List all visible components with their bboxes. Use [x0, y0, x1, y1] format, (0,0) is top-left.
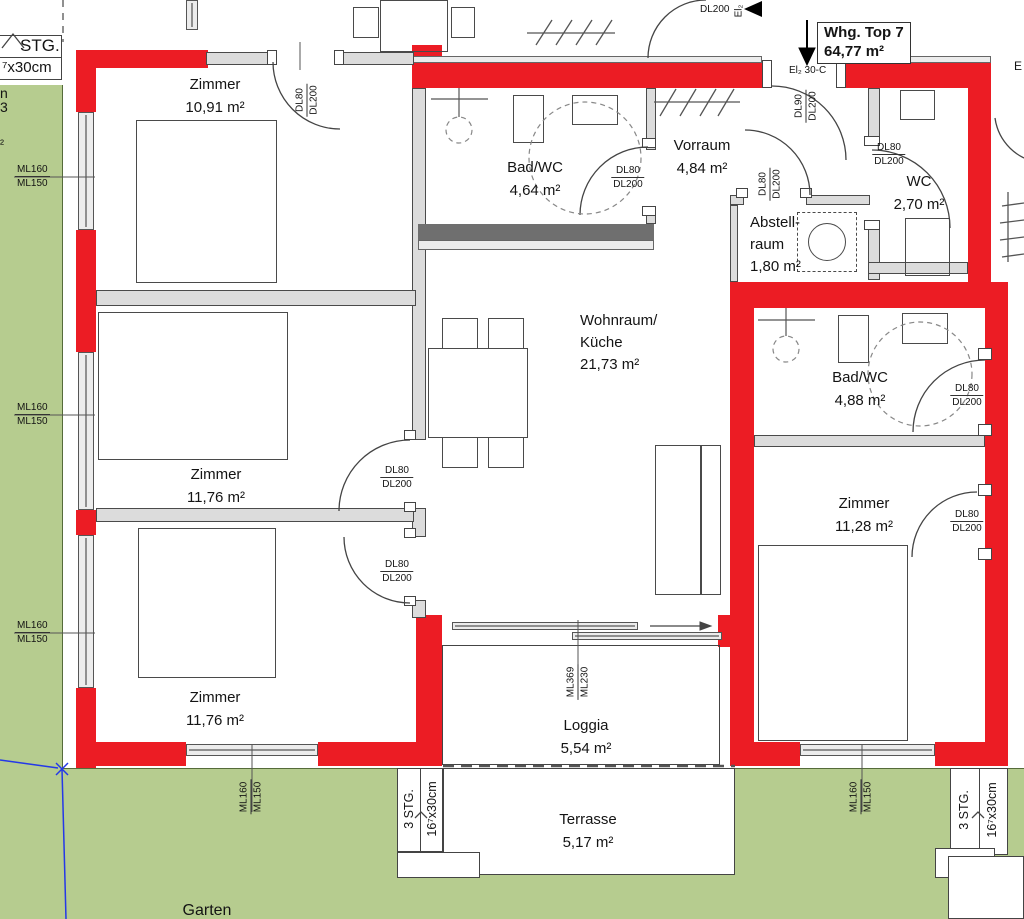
door-post	[736, 188, 748, 198]
room-label-wc: WC 2,70 m²	[894, 170, 945, 217]
room-name: Zimmer	[190, 689, 241, 706]
wall-segment	[844, 62, 970, 88]
chair	[488, 318, 524, 348]
interior-wall	[806, 195, 870, 205]
window	[186, 744, 318, 756]
room-label-zimmer-right: Zimmer 11,28 m²	[835, 492, 893, 539]
door-size-label: DL80 DL200	[294, 83, 321, 116]
room-area: 1,80 m²	[750, 258, 801, 275]
garden-left-strip	[0, 85, 63, 919]
room-name: Wohnraum/	[580, 312, 657, 329]
unit-title: Whg. Top 7	[824, 24, 904, 41]
sideboard-line	[700, 445, 702, 595]
window-width: ML160	[15, 163, 50, 177]
door-height: DL200	[611, 178, 644, 191]
loggia-slider-left	[452, 622, 638, 630]
chair	[488, 438, 524, 468]
chair-outside	[353, 7, 379, 38]
door-height: DL200	[380, 478, 413, 491]
room-label-vorraum: Vorraum 4,84 m²	[674, 134, 731, 181]
door-size-label: DL80 DL200	[380, 558, 413, 585]
wall-segment	[76, 230, 96, 352]
garden-label: Garten	[183, 899, 232, 919]
room-label-terrasse: Terrasse 5,17 m²	[559, 808, 617, 855]
door-post	[404, 596, 416, 606]
door-width: DL80	[950, 382, 983, 396]
window	[800, 744, 935, 756]
stair-size-partial: ⁷x30cm	[2, 59, 52, 77]
window-width: ML160	[15, 401, 50, 415]
window	[78, 352, 94, 510]
window	[78, 535, 94, 688]
room-area: 10,91 m²	[185, 99, 244, 116]
chair-outside	[451, 7, 475, 38]
door-width: DL80	[611, 164, 644, 178]
corridor-arrow-icon	[744, 1, 762, 17]
shower	[838, 315, 869, 363]
interior-wall	[730, 205, 738, 282]
door-height: DL200	[950, 522, 983, 535]
wall-segment	[730, 282, 1008, 308]
window-size-label: ML160 ML150	[238, 780, 265, 815]
kitchen-counter	[418, 224, 654, 240]
room-label-zimmer-mid-left: Zimmer 11,76 m²	[187, 463, 245, 510]
door-post	[836, 60, 846, 88]
steps-left-lower	[397, 852, 480, 878]
door-width: DL80	[950, 508, 983, 522]
room-name: Terrasse	[559, 811, 617, 828]
unit-title-box: Whg. Top 7 64,77 m²	[817, 22, 911, 64]
window-size-label: ML160 ML150	[848, 780, 875, 815]
room-name: Zimmer	[839, 495, 890, 512]
window-width: ML160	[848, 780, 862, 815]
room-name: Zimmer	[191, 466, 242, 483]
wall-segment	[416, 615, 442, 766]
door-width: DL80	[757, 167, 771, 200]
room-area: 11,28 m²	[835, 518, 893, 535]
sideboard	[655, 445, 721, 595]
bed	[98, 312, 288, 460]
door-size-label: DL80 DL200	[757, 167, 784, 200]
room-name: WC	[906, 173, 931, 190]
door-post	[267, 50, 277, 65]
window-height: ML150	[862, 780, 875, 815]
washing-machine-drum	[808, 223, 846, 261]
door-width: DL80	[380, 558, 413, 572]
door-size-label: DL80 DL200	[950, 508, 983, 535]
door-size-label: DL80 DL200	[872, 141, 905, 168]
door-post	[978, 424, 992, 436]
chair	[442, 438, 478, 468]
bed	[758, 545, 908, 741]
door-post	[642, 206, 656, 216]
room-area: 5,54 m²	[561, 740, 612, 757]
interior-wall	[338, 52, 414, 65]
room-label-zimmer-top-left: Zimmer 10,91 m²	[185, 73, 244, 120]
room-name: Vorraum	[674, 137, 731, 154]
door-height: DL200	[950, 396, 983, 409]
door-post	[642, 138, 656, 148]
wall-segment	[76, 742, 186, 766]
interior-wall	[96, 508, 414, 522]
door-post	[978, 484, 992, 496]
unit-area: 64,77 m²	[824, 43, 884, 60]
steps-right-divider	[979, 768, 980, 855]
door-width: DL80	[872, 141, 905, 155]
window	[186, 0, 198, 30]
shower	[513, 95, 544, 143]
door-height: DL200	[308, 83, 321, 116]
window-size-label: ML160 ML150	[15, 401, 50, 428]
table-outside	[380, 0, 448, 52]
door-size-label: DL80 DL200	[380, 464, 413, 491]
door-post	[864, 220, 880, 230]
floor-plan: STG. ⁷x30cm	[0, 0, 1024, 919]
door-height: DL200	[380, 572, 413, 585]
room-name: Bad/WC	[832, 369, 888, 386]
wall-segment	[754, 742, 800, 766]
bed	[138, 528, 276, 678]
wall-segment	[968, 62, 991, 308]
interior-wall	[412, 88, 426, 440]
window-width: ML160	[238, 780, 252, 815]
room-name: Bad/WC	[507, 159, 563, 176]
window-height: ML150	[15, 415, 50, 428]
room-name: Küche	[580, 334, 623, 351]
door-height: DL200	[771, 167, 784, 200]
edge-text-fragment: ²	[0, 138, 4, 150]
room-label-bad-wc-right: Bad/WC 4,88 m²	[832, 366, 888, 413]
door-post	[978, 548, 992, 560]
door-post	[404, 528, 416, 538]
stairs-count-label: 3 STG.	[957, 790, 971, 830]
window-height: ML150	[15, 633, 50, 646]
interior-wall	[96, 290, 416, 306]
room-name: raum	[750, 236, 784, 253]
door-post	[762, 60, 772, 88]
entrance-door-code: El₂ 30-C	[789, 64, 826, 77]
room-area: 4,88 m²	[835, 392, 886, 409]
window	[78, 112, 94, 230]
chair	[442, 318, 478, 348]
stairs-count-label: 3 STG.	[402, 789, 416, 829]
door-post	[334, 50, 344, 65]
room-area: 5,17 m²	[563, 834, 614, 851]
door-height: DL200	[807, 89, 820, 122]
room-area: 11,76 m²	[187, 489, 245, 506]
door-size-label: DL80 DL200	[950, 382, 983, 409]
wall-segment	[76, 510, 96, 535]
door-width: DL90	[793, 89, 807, 122]
stair-label-partial: STG.	[20, 37, 60, 56]
steps-left-divider	[420, 768, 421, 852]
loggia-door-size-label: ML369 ML230	[565, 665, 592, 700]
edge-text-fragment: 3	[0, 100, 8, 114]
stairs-size-label: 16⁷x30cm	[985, 782, 999, 837]
corridor-el-label: El₂	[733, 5, 746, 18]
kitchen-counter-edge	[418, 240, 654, 250]
door-post	[800, 188, 812, 198]
stairs-size-label: 16⁷x30cm	[425, 781, 439, 836]
door-width: DL80	[380, 464, 413, 478]
room-name: Zimmer	[190, 76, 241, 93]
washer	[902, 313, 948, 344]
room-area: 2,70 m²	[894, 196, 945, 213]
interior-wall	[206, 52, 273, 65]
window-height: ML230	[579, 665, 592, 700]
room-label-zimmer-bottom-left: Zimmer 11,76 m²	[186, 686, 244, 733]
dining-table	[428, 348, 528, 438]
interior-wall	[754, 435, 985, 447]
room-area: 4,64 m²	[510, 182, 561, 199]
window-width: ML369	[565, 665, 579, 700]
bed	[136, 120, 277, 283]
room-label-wohnraum: Wohnraum/ Küche 21,73 m²	[580, 310, 657, 375]
door-post	[404, 502, 416, 512]
wc-sink	[900, 90, 935, 120]
slider-arrow-icon	[650, 622, 711, 630]
wall-segment	[935, 742, 1008, 766]
window-height: ML150	[252, 780, 265, 815]
room-label-loggia: Loggia 5,54 m²	[561, 714, 612, 761]
door-height: DL200	[872, 155, 905, 168]
wall-segment	[985, 300, 1008, 766]
window-size-label: ML160 ML150	[15, 163, 50, 190]
steps-bottom-right-b	[948, 856, 1024, 919]
wc-toilet	[905, 218, 950, 276]
entrance-arrow-icon	[799, 20, 815, 65]
window-width: ML160	[15, 619, 50, 633]
wall-segment	[730, 282, 754, 766]
entrance-door-size-label: DL90 DL200	[793, 89, 820, 122]
room-area: 21,73 m²	[580, 356, 639, 373]
washer	[572, 95, 618, 125]
door-size-label: DL80 DL200	[611, 164, 644, 191]
edge-text-fragment: E	[1014, 60, 1022, 72]
wall-segment	[412, 62, 762, 88]
room-area: 4,84 m²	[677, 160, 728, 177]
wall-segment	[76, 50, 96, 112]
door-post	[404, 430, 416, 440]
room-area: 11,76 m²	[186, 712, 244, 729]
door-width: DL80	[294, 83, 308, 116]
corridor-door-label: DL200	[700, 3, 729, 16]
wall-face-strip	[412, 56, 762, 63]
wall-segment	[718, 615, 754, 647]
edge-text-fragment: n	[0, 86, 8, 100]
door-post	[978, 348, 992, 360]
loggia-slider-right	[572, 632, 722, 640]
room-name: Abstell-	[750, 214, 800, 231]
window-height: ML150	[15, 177, 50, 190]
room-name: Loggia	[563, 717, 608, 734]
room-label-bad-wc-top: Bad/WC 4,64 m²	[507, 156, 563, 203]
stair-label-box-divider	[0, 57, 62, 58]
window-size-label: ML160 ML150	[15, 619, 50, 646]
room-label-abstellraum: Abstell- raum 1,80 m²	[750, 212, 801, 277]
